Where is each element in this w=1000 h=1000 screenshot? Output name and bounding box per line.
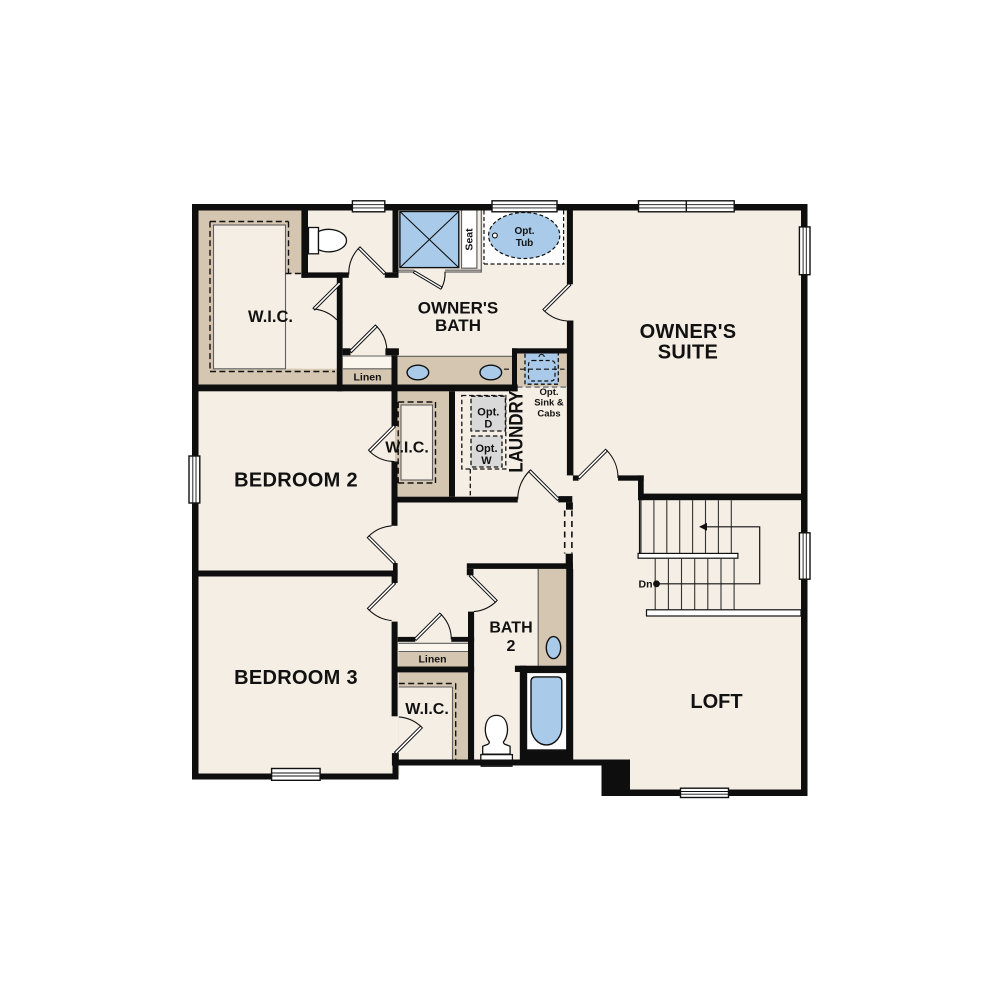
svg-text:Seat: Seat xyxy=(464,228,476,251)
svg-text:W.I.C.: W.I.C. xyxy=(248,308,293,326)
svg-text:Dn: Dn xyxy=(639,579,653,591)
svg-text:Opt.: Opt. xyxy=(476,443,498,455)
svg-text:Opt.: Opt. xyxy=(540,387,559,398)
svg-text:Sink &: Sink & xyxy=(534,398,564,409)
svg-text:D: D xyxy=(484,419,492,431)
svg-text:Tub: Tub xyxy=(516,238,534,249)
svg-text:Linen: Linen xyxy=(419,654,447,666)
svg-text:BATH: BATH xyxy=(489,620,532,637)
svg-text:W.I.C.: W.I.C. xyxy=(385,440,429,457)
svg-text:OWNER'S: OWNER'S xyxy=(418,299,499,318)
svg-text:SUITE: SUITE xyxy=(658,342,718,364)
svg-text:LOFT: LOFT xyxy=(690,691,742,713)
svg-text:Opt.: Opt. xyxy=(515,226,535,237)
svg-text:BATH: BATH xyxy=(435,316,481,335)
svg-text:W: W xyxy=(481,455,492,467)
svg-text:Cabs: Cabs xyxy=(537,408,560,419)
svg-text:W.I.C.: W.I.C. xyxy=(405,701,449,718)
svg-text:Opt.: Opt. xyxy=(477,407,499,419)
svg-text:2: 2 xyxy=(507,638,516,655)
svg-text:BEDROOM 3: BEDROOM 3 xyxy=(234,667,358,689)
svg-text:LAUNDRY: LAUNDRY xyxy=(507,390,528,472)
svg-text:Linen: Linen xyxy=(354,372,382,384)
svg-text:OWNER'S: OWNER'S xyxy=(640,321,737,343)
svg-text:BEDROOM 2: BEDROOM 2 xyxy=(234,470,358,492)
